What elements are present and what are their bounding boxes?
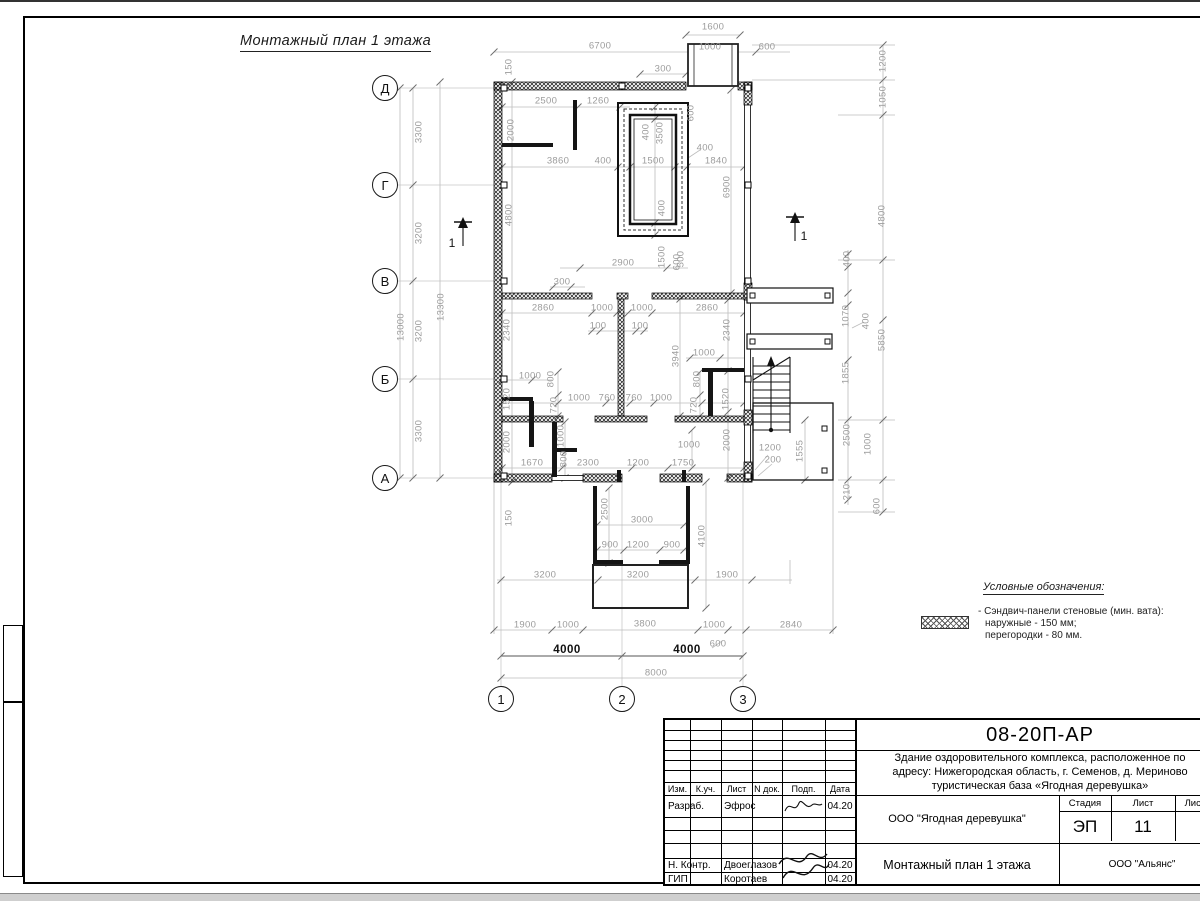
stamp-line bbox=[665, 760, 855, 761]
dimension-label: 2340 bbox=[502, 319, 513, 341]
dimension-label: 1000 bbox=[693, 348, 715, 359]
dimension-label: 2300 bbox=[577, 458, 599, 469]
dimension-label: 600 bbox=[710, 639, 727, 650]
stamp-line bbox=[665, 730, 855, 731]
dimension-label: 2000 bbox=[722, 429, 733, 451]
dimension-label: 1750 bbox=[672, 458, 694, 469]
axis-bubble-1: 1 bbox=[488, 686, 514, 712]
dimension-label: 1900 bbox=[716, 570, 738, 581]
dimension-label: 5850 bbox=[877, 329, 888, 351]
dimension-label: 3200 bbox=[627, 570, 649, 581]
dimension-label: 2860 bbox=[532, 303, 554, 314]
stamp-line bbox=[665, 740, 855, 741]
dimension-label: 600 bbox=[872, 498, 883, 515]
dimension-label: 1500 bbox=[657, 246, 668, 268]
dimension-label: 6700 bbox=[589, 41, 611, 52]
axis-bubble-Б: Б bbox=[372, 366, 398, 392]
dimension-label: 2500 bbox=[600, 498, 611, 520]
axis-bubble-3: 3 bbox=[730, 686, 756, 712]
dimension-label: 2840 bbox=[780, 620, 802, 631]
stamp-row-role: ГИП bbox=[665, 872, 721, 886]
dimension-label: 720 bbox=[549, 397, 560, 414]
wall-hatch-swatch bbox=[921, 616, 969, 629]
dimension-label: 1520 bbox=[721, 388, 732, 410]
dimension-label: 1200 bbox=[627, 540, 649, 551]
dimension-label: 1855 bbox=[841, 362, 852, 384]
dimension-label: 1670 bbox=[521, 458, 543, 469]
dimension-label: 4100 bbox=[697, 525, 708, 547]
dimension-label: 3300 bbox=[414, 121, 425, 143]
dimension-label: 1000 bbox=[703, 620, 725, 631]
dimension-label: 500 bbox=[676, 251, 687, 268]
axis-bubble-А: А bbox=[372, 465, 398, 491]
dimension-label: 2500 bbox=[842, 424, 853, 446]
stamp-col-kuch: К.уч. bbox=[690, 782, 721, 795]
dimension-label: 100 bbox=[590, 321, 607, 332]
dimension-label: 600 bbox=[759, 42, 776, 53]
stage-value: ЭП bbox=[1059, 811, 1111, 843]
dimension-label: 800 bbox=[559, 451, 570, 468]
dimension-label: 150 bbox=[504, 510, 515, 527]
dimension-label: 3800 bbox=[634, 619, 656, 630]
dimension-label: 1500 bbox=[642, 156, 664, 167]
dimension-label: 760 bbox=[626, 393, 643, 404]
dimension-label: 1200 bbox=[627, 458, 649, 469]
sheets-label: Листов bbox=[1175, 795, 1200, 811]
stamp-row-name: Коротаев bbox=[721, 872, 782, 886]
dimension-label: 3000 bbox=[631, 515, 653, 526]
dimension-label: 1520 bbox=[502, 388, 513, 410]
dimension-label: 900 bbox=[664, 540, 681, 551]
dimension-label: 800 bbox=[546, 371, 557, 388]
stamp-row-role: Н. Контр. bbox=[665, 858, 721, 872]
dimension-label: 1260 bbox=[587, 96, 609, 107]
dimension-label: 2000 bbox=[506, 119, 517, 141]
dimension-label: 400 bbox=[842, 251, 853, 268]
dimension-label: 150 bbox=[504, 59, 515, 76]
cad-sheet-view: { "drawing": { "title": "Монтажный план … bbox=[0, 0, 1200, 900]
dimension-label: 400 bbox=[595, 156, 612, 167]
dimension-label: 760 bbox=[599, 393, 616, 404]
dimension-label: 13300 bbox=[436, 293, 447, 321]
dimension-label: 1000 bbox=[556, 425, 567, 447]
stamp-col-podp: Подп. bbox=[782, 782, 825, 795]
legend-item-text: перегородки - 80 мм. bbox=[985, 630, 1082, 641]
dimension-label: 300 bbox=[554, 277, 571, 288]
axis-bubble-Д: Д bbox=[372, 75, 398, 101]
project-name-line: туристическая база «Ягодная деревушка» bbox=[855, 779, 1200, 793]
dimension-label: 400 bbox=[697, 143, 714, 154]
dimension-label: 2340 bbox=[722, 319, 733, 341]
dimension-label: 600 bbox=[686, 105, 697, 122]
dimension-label: 8000 bbox=[645, 668, 667, 679]
stamp-col-data: Дата bbox=[825, 782, 855, 795]
dimension-label: 400 bbox=[657, 200, 668, 217]
dimension-label: 1840 bbox=[705, 156, 727, 167]
axis-bubble-Г: Г bbox=[372, 172, 398, 198]
project-name-line: Здание оздоровительного комплекса, распо… bbox=[855, 751, 1200, 765]
document-code: 08-20П-АР bbox=[855, 720, 1200, 750]
dimension-label: 3860 bbox=[547, 156, 569, 167]
stamp-col-ndok: N док. bbox=[752, 782, 782, 795]
dimension-label: 400 bbox=[861, 313, 872, 330]
dimension-label: 3940 bbox=[671, 345, 682, 367]
dimension-label: 1000 bbox=[678, 440, 700, 451]
dimension-label: 2500 bbox=[535, 96, 557, 107]
dimension-label: 720 bbox=[689, 397, 700, 414]
dimension-label: 100 bbox=[632, 321, 649, 332]
dimension-label: 13000 bbox=[396, 313, 407, 341]
dimension-label: 3200 bbox=[534, 570, 556, 581]
stamp-row-date: 04.20 bbox=[825, 795, 855, 817]
dimension-label: 1050 bbox=[878, 86, 889, 108]
dimension-label: 3300 bbox=[414, 420, 425, 442]
dimension-label: 1000 bbox=[557, 620, 579, 631]
dimension-label: 4000 bbox=[673, 644, 701, 656]
legend-item-text: наружные - 150 мм; bbox=[985, 618, 1076, 629]
drawing-title: Монтажный план 1 этажа bbox=[855, 843, 1059, 886]
dimension-label: 4800 bbox=[877, 205, 888, 227]
dimension-label: 1600 bbox=[702, 22, 724, 33]
dimension-label: 300 bbox=[655, 64, 672, 75]
dimension-label: 1000 bbox=[863, 433, 874, 455]
stamp-row-name: Эфрос bbox=[721, 795, 782, 817]
stamp-row-name: Двоеглазов bbox=[721, 858, 782, 872]
legend-item-text: - Сэндвич-панели стеновые (мин. вата): bbox=[978, 606, 1164, 617]
section-mark-label: 1 bbox=[449, 236, 456, 250]
legend-title: Условные обозначения: bbox=[983, 581, 1104, 595]
dimension-label: 1000 bbox=[519, 371, 541, 382]
stamp-line bbox=[665, 830, 855, 831]
dimension-label: 200 bbox=[765, 455, 782, 466]
signature bbox=[782, 795, 825, 817]
stamp-col-list: Лист bbox=[721, 782, 752, 795]
dimension-label: 2900 bbox=[612, 258, 634, 269]
stamp-line bbox=[665, 770, 855, 771]
signature bbox=[775, 846, 833, 888]
dimension-label: 2860 bbox=[696, 303, 718, 314]
dimension-label: 1000 bbox=[650, 393, 672, 404]
axis-bubble-2: 2 bbox=[609, 686, 635, 712]
dimension-label: 1555 bbox=[795, 440, 806, 462]
dimension-label: 1200 bbox=[759, 443, 781, 454]
dimension-label: 1000 bbox=[699, 42, 721, 53]
dimension-label: 800 bbox=[692, 371, 703, 388]
sheet-label: Лист bbox=[1111, 795, 1175, 811]
section-mark-label: 1 bbox=[801, 229, 808, 243]
stamp-row-role: Разраб. bbox=[665, 795, 721, 817]
dimension-label: 1000 bbox=[591, 303, 613, 314]
sheet-value: 11 bbox=[1111, 811, 1175, 843]
stamp-line bbox=[665, 817, 855, 818]
dimension-label: 1000 bbox=[631, 303, 653, 314]
axis-bubble-В: В bbox=[372, 268, 398, 294]
dimension-label: 1070 bbox=[841, 305, 852, 327]
dimension-label: 210 bbox=[842, 484, 853, 501]
dimension-label: 3500 bbox=[655, 122, 666, 144]
dimension-label: 4800 bbox=[504, 204, 515, 226]
stamp-col-izm: Изм. bbox=[665, 782, 690, 795]
dimension-label: 6900 bbox=[722, 176, 733, 198]
dimension-label: 1900 bbox=[514, 620, 536, 631]
dimension-label: 1000 bbox=[568, 393, 590, 404]
dimension-label: 3200 bbox=[414, 222, 425, 244]
title-block: Изм. К.уч. Лист N док. Подп. Дата Разраб… bbox=[663, 718, 1200, 886]
dimension-label: 3200 bbox=[414, 320, 425, 342]
dimension-label: 400 bbox=[641, 124, 652, 141]
dimension-label: 4000 bbox=[553, 644, 581, 656]
project-name-line: адресу: Нижегородская область, г. Семено… bbox=[855, 765, 1200, 779]
dimension-label: 900 bbox=[602, 540, 619, 551]
organization-name: ООО "Ягодная деревушка" bbox=[855, 795, 1059, 843]
company-name: ООО "Альянс" bbox=[1059, 843, 1200, 886]
dimension-label: 2000 bbox=[502, 431, 513, 453]
dimension-label: 1200 bbox=[878, 50, 889, 72]
stage-label: Стадия bbox=[1059, 795, 1111, 811]
